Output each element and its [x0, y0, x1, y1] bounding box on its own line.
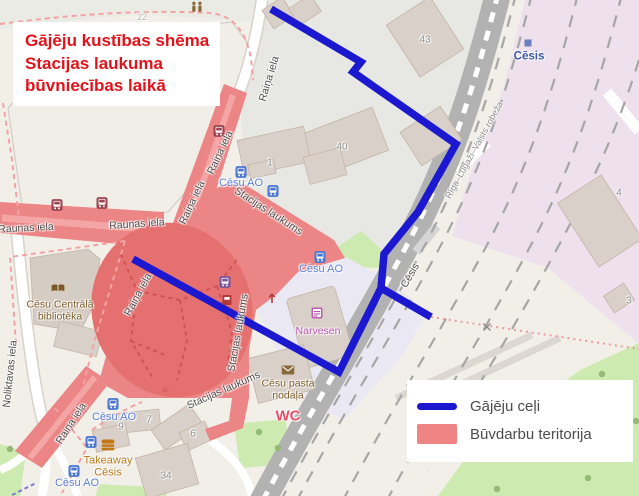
burger-icon: [102, 440, 115, 451]
bus-icon: [69, 465, 80, 477]
bus-icon: [86, 436, 97, 448]
pedestrian-path-swatch: [417, 403, 457, 410]
construction-area-swatch: [417, 424, 457, 444]
bus-icon: [108, 398, 119, 410]
bus-icon: [315, 251, 326, 263]
bus-icon: [268, 185, 279, 197]
bus-icon: [97, 197, 108, 209]
shop-icon: [312, 308, 322, 318]
legend: Gājēju ceļi Būvdarbu teritorija: [407, 380, 633, 462]
envelope-icon: [282, 366, 295, 375]
bus-icon: [236, 166, 247, 178]
bus-icon: [52, 199, 63, 211]
legend-label-construction: Būvdarbu teritorija: [470, 426, 592, 443]
legend-label-paths: Gājēju ceļi: [470, 398, 540, 415]
title-box: Gājēju kustības shēma Stacijas laukuma b…: [13, 22, 220, 106]
kiosk-icon: [223, 295, 232, 305]
book-icon: [52, 284, 65, 291]
square-icon: [525, 40, 532, 47]
bus-icon: [220, 276, 231, 288]
bus-icon: [214, 125, 225, 137]
page-title: Gājēju kustības shēma Stacijas laukuma b…: [25, 30, 212, 98]
legend-row-construction: Būvdarbu teritorija: [417, 424, 623, 444]
legend-row-paths: Gājēju ceļi: [417, 398, 623, 415]
map-stage: Gājēju kustības shēma Stacijas laukuma b…: [0, 0, 639, 496]
